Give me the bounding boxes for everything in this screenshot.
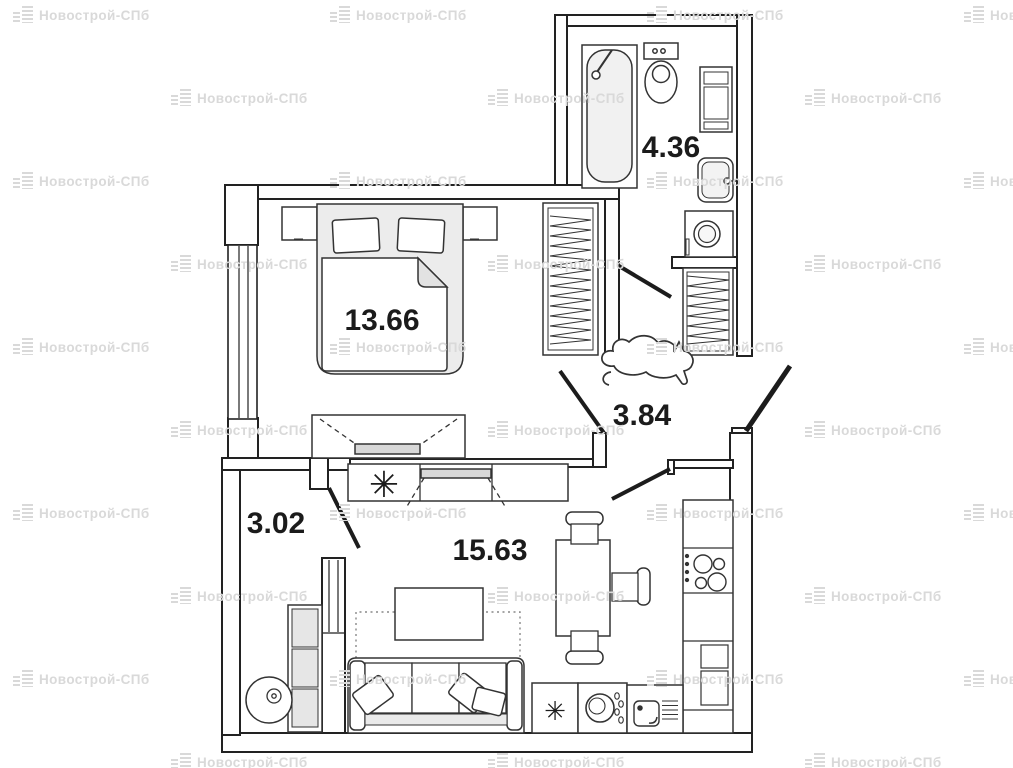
dining-table — [556, 540, 610, 636]
sofa-armrest-right — [507, 661, 522, 730]
wall-hall-stub — [310, 458, 328, 489]
floorplan-canvas: ✳ ✳ 13.66 4.36 3.84 3.02 15.63 Новострой… — [0, 0, 1013, 768]
wall-bedroom-se-stub — [593, 433, 606, 467]
wall-bottom — [222, 733, 752, 752]
bedroom-door-leaf — [560, 371, 604, 433]
wall-kitchen-top — [668, 460, 733, 468]
chair-bottom — [566, 651, 603, 664]
wall-left-lower — [222, 458, 240, 735]
pillow-right — [397, 218, 445, 253]
floor-plan-svg: ✳ ✳ 13.66 4.36 3.84 3.02 15.63 — [0, 0, 1013, 768]
chair-right — [637, 568, 650, 605]
plant-icon: ✳ — [369, 465, 399, 506]
bathroom-door-leaf — [619, 266, 671, 297]
wall-hall-top — [222, 458, 350, 470]
living-kitchen-area-label: 15.63 — [452, 534, 527, 567]
wall-pier-bottom-left — [228, 418, 258, 459]
pillow-left — [332, 218, 380, 253]
bathroom-area-label: 4.36 — [642, 131, 700, 164]
nightstand-right — [463, 207, 497, 240]
bedroom-window — [228, 245, 257, 419]
wall-kitchen-top-step — [668, 460, 674, 474]
wall-bedroom-top — [225, 185, 619, 199]
wall-pier-top-left — [225, 185, 258, 245]
wall-right-upper — [737, 15, 752, 356]
cat-tail — [603, 372, 611, 385]
wall-bedroom-right — [605, 199, 619, 363]
bedroom-furniture — [282, 203, 598, 458]
nightstand-left — [282, 207, 317, 240]
coffee-table — [395, 588, 483, 640]
wall-bathroom-top — [555, 15, 752, 26]
wall-bathroom-left — [555, 15, 567, 187]
chair-top — [566, 512, 603, 525]
hallway-area-label: 3.84 — [613, 399, 672, 432]
bedroom-area-label: 13.66 — [344, 304, 419, 337]
entry-hall-area-label: 3.02 — [247, 507, 305, 540]
fridge-main-door — [701, 671, 728, 705]
freezer-snowflake-icon: ✳ — [544, 697, 566, 727]
wall-partition — [322, 558, 345, 733]
entry-hall-furniture — [246, 605, 322, 732]
cat-drawing — [602, 336, 693, 384]
corridor-items — [602, 268, 733, 385]
living-tv — [421, 469, 491, 478]
bedroom-tv — [355, 444, 420, 454]
wall-bathroom-bottom — [672, 257, 737, 268]
living-door-leaf — [612, 469, 670, 499]
entrance-door-leaf — [746, 366, 790, 431]
fridge-freezer-door — [701, 645, 728, 668]
